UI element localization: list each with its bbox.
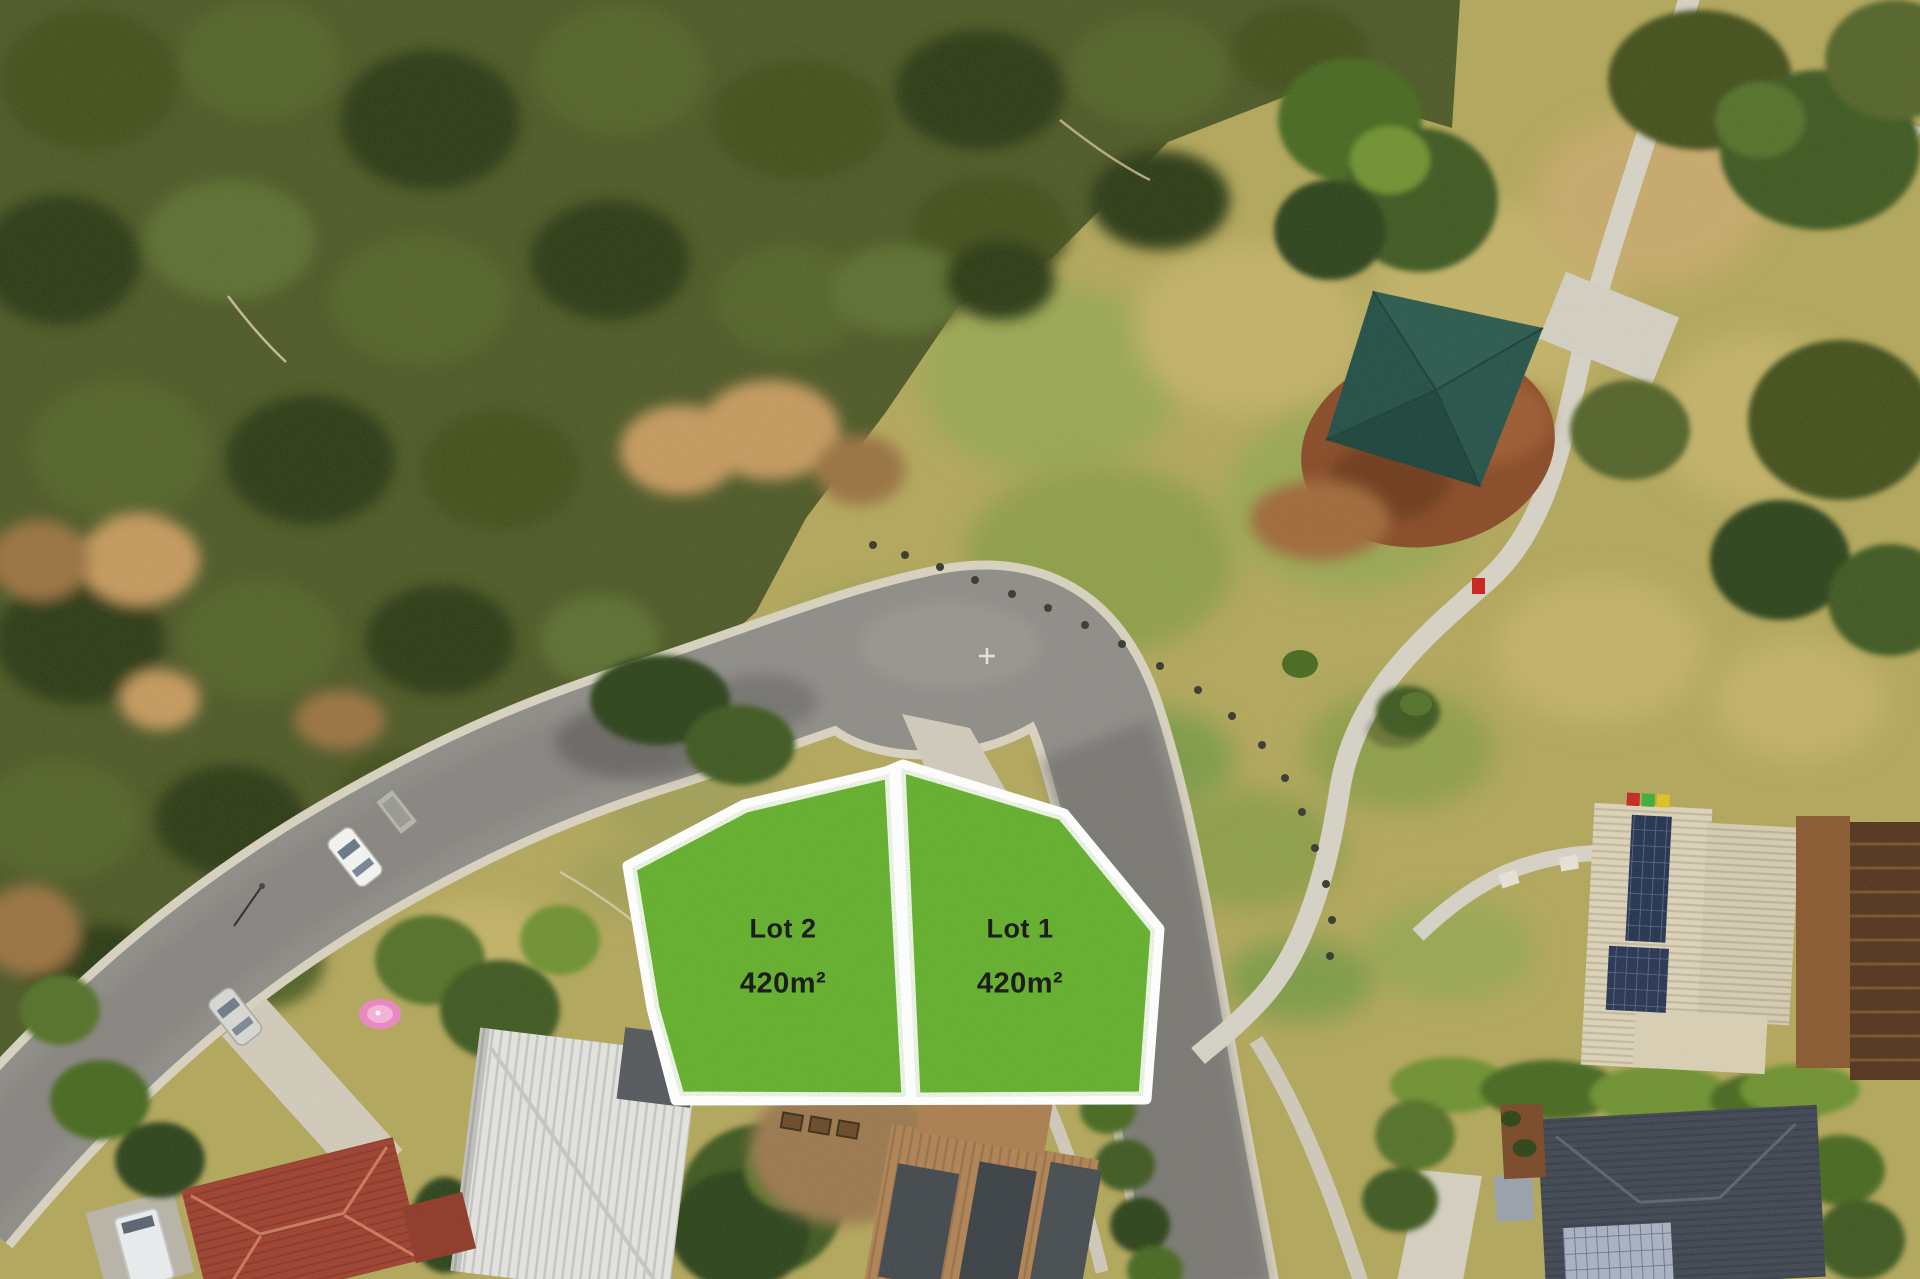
photo-grain xyxy=(0,0,1920,1279)
lot-2-area: 420m² xyxy=(740,968,826,1001)
lot-1-label: Lot 1 xyxy=(987,914,1054,945)
aerial-photo-canvas xyxy=(0,0,1920,1279)
lot-2-label: Lot 2 xyxy=(750,914,817,945)
aerial-photo: Lot 2 420m² Lot 1 420m² xyxy=(0,0,1920,1279)
lot-1-area: 420m² xyxy=(977,968,1063,1001)
